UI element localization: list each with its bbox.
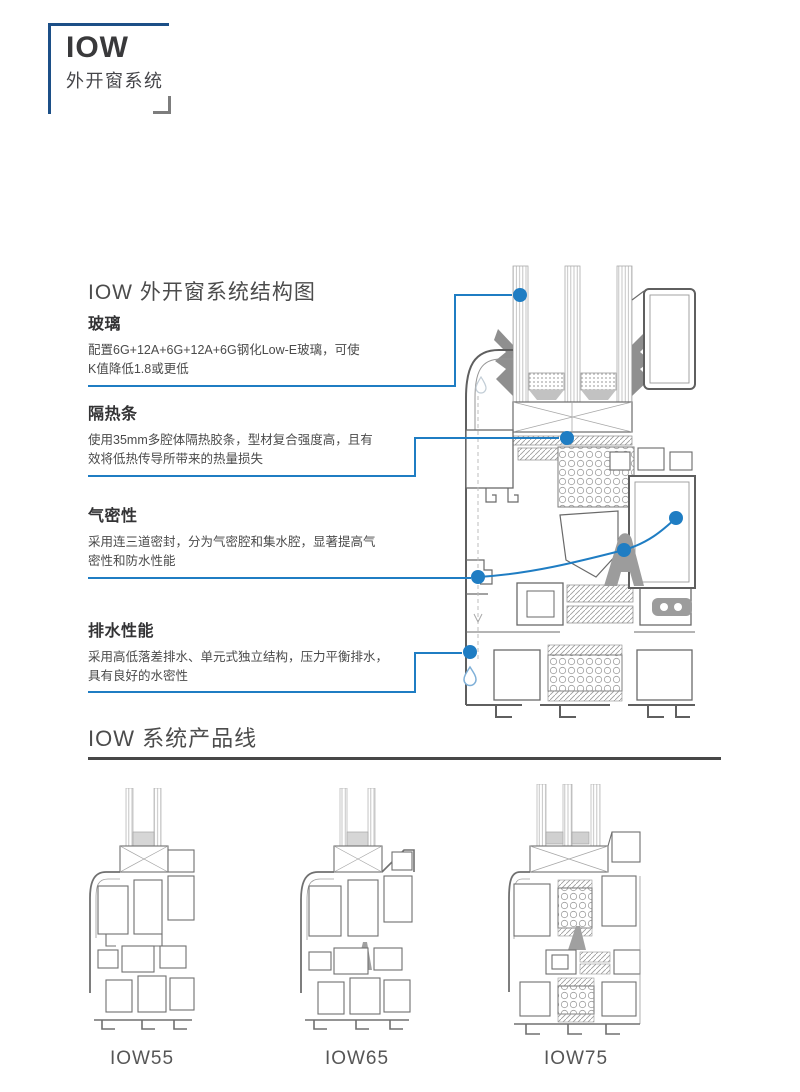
feature-body: 使用35mm多腔体隔热胶条，型材复合强度高，且有 效将低热传导所带来的热量损失 bbox=[88, 431, 460, 469]
product-label-iow55: IOW55 bbox=[86, 1048, 198, 1070]
feature-title: 气密性 bbox=[88, 502, 460, 526]
lock-keeper-hardware bbox=[652, 598, 692, 616]
feature-title: 隔热条 bbox=[88, 400, 460, 424]
structure-section-heading: IOW 外开窗系统结构图 bbox=[88, 276, 316, 306]
glazing-spacer bbox=[529, 373, 564, 390]
product-diagram-iow55 bbox=[86, 788, 198, 1040]
feature-title: 玻璃 bbox=[88, 310, 460, 334]
product-label-iow65: IOW65 bbox=[296, 1048, 418, 1070]
feature-glass: 玻璃 配置6G+12A+6G+12A+6G钢化Low-E玻璃，可使 K值降低1.… bbox=[88, 310, 460, 379]
brand-title: IOW bbox=[66, 31, 129, 65]
main-structure-diagram bbox=[450, 260, 710, 725]
product-label-iow75: IOW75 bbox=[506, 1048, 646, 1070]
section-divider-rule bbox=[88, 757, 721, 760]
brand-subtitle: 外开窗系统 bbox=[66, 67, 164, 93]
brochure-page: IOW 外开窗系统 IOW 外开窗系统结构图 玻璃 配置6G+12A+6G+12… bbox=[0, 0, 800, 1092]
feature-air-tightness: 气密性 采用连三道密封，分为气密腔和集水腔，显著提高气 密性和防水性能 bbox=[88, 502, 460, 571]
insulation-foam bbox=[548, 655, 622, 691]
glazing-gasket bbox=[494, 329, 513, 396]
feature-body: 采用连三道密封，分为气密腔和集水腔，显著提高气 密性和防水性能 bbox=[88, 533, 460, 571]
product-section-heading: IOW 系统产品线 bbox=[88, 721, 257, 753]
feature-thermal-break: 隔热条 使用35mm多腔体隔热胶条，型材复合强度高，且有 效将低热传导所带来的热… bbox=[88, 400, 460, 469]
feature-body: 配置6G+12A+6G+12A+6G钢化Low-E玻璃，可使 K值降低1.8或更… bbox=[88, 341, 460, 379]
logo-corner-bracket-gray bbox=[153, 96, 171, 114]
feature-body: 采用高低落差排水、单元式独立结构，压力平衡排水， 具有良好的水密性 bbox=[88, 648, 460, 686]
product-diagram-iow75 bbox=[506, 784, 646, 1046]
product-diagram-iow65 bbox=[296, 788, 418, 1040]
feature-title: 排水性能 bbox=[88, 617, 460, 641]
feature-drainage: 排水性能 采用高低落差排水、单元式独立结构，压力平衡排水， 具有良好的水密性 bbox=[88, 617, 460, 686]
glazing-spacer bbox=[581, 373, 616, 390]
